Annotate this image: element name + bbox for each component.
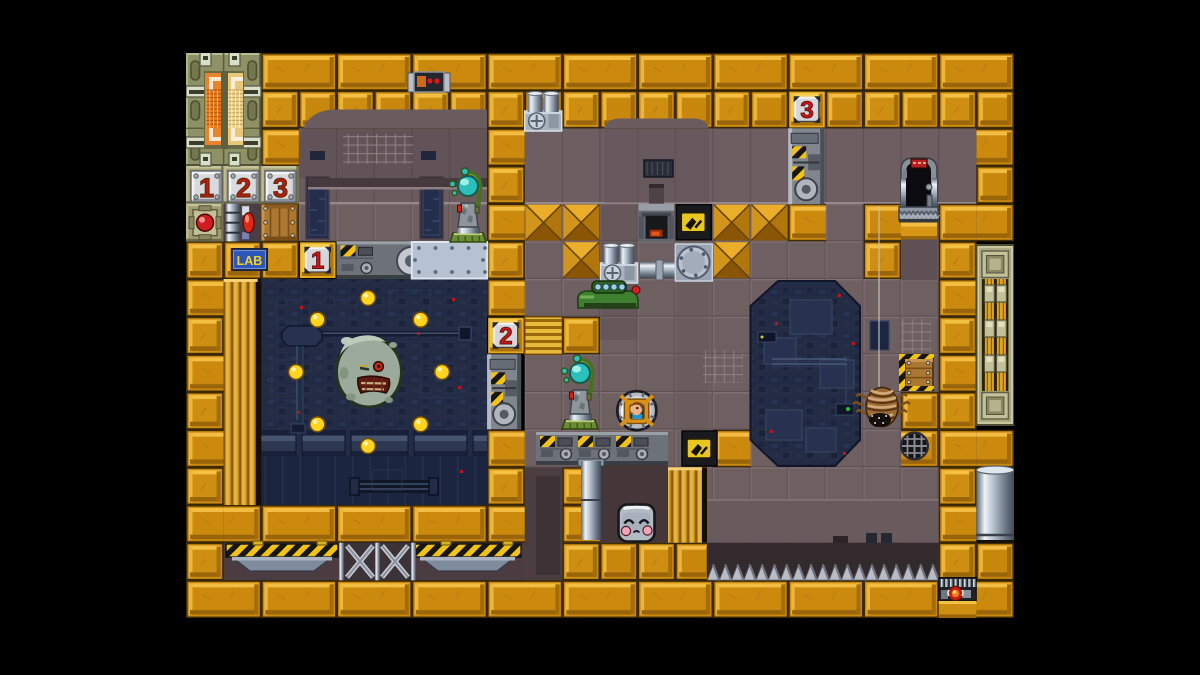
svg-text:2: 2 bbox=[499, 323, 512, 350]
svg-text:3: 3 bbox=[800, 97, 813, 124]
svg-text:2: 2 bbox=[236, 173, 251, 203]
svg-text:1: 1 bbox=[199, 173, 214, 203]
svg-text:1: 1 bbox=[311, 248, 324, 275]
svg-text:LAB: LAB bbox=[237, 254, 263, 268]
svg-text:3: 3 bbox=[273, 173, 288, 203]
